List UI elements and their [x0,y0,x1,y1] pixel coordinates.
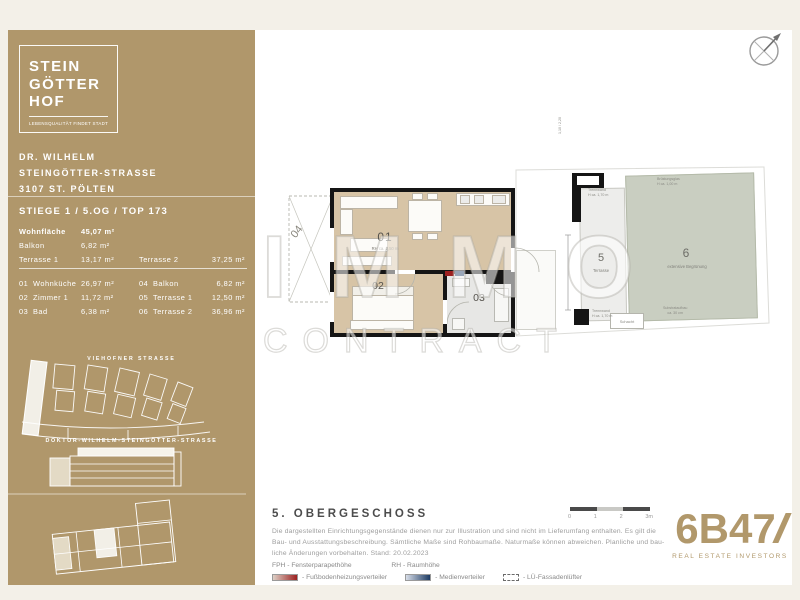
room-label: Balkon [153,279,179,288]
plan-room-01-sublabel: RH ca. 2,50 m [351,246,419,251]
annotation-bruestung: BrüstungsglasH ca. 1,00 m [657,177,680,188]
scale-tick: 1 [594,514,597,520]
plan-sheet: Schacht 01 RH ca. 2,50 m 02 03 04 5 Terr… [255,30,792,585]
brand-subtitle: REAL ESTATE INVESTORS [668,553,792,560]
abbreviations-row: FPH - Fensterparapethöhe RH - Raumhöhe [272,562,478,569]
summary-label: Balkon [19,241,81,250]
brand-6b47-logo: 6B47 REAL ESTATE INVESTORS [668,508,792,560]
wall-bottom [330,333,515,337]
summary-value: 37,25 m² [195,255,245,264]
annotation-trennwand-top: TrennwandH ca. 1,70 m [588,188,608,199]
door-opening [443,300,447,324]
room-label: Bad [33,307,48,316]
brochure-page: STEIN GÖTTER HOF LEBENSQUALITÄT FINDET S… [0,0,800,600]
address-line-1: DR. WILHELM [19,150,157,166]
plan-terrace-5-sublabel: Terrasse [581,268,621,273]
room-row: 03Bad 6,38 m² 06Terrasse 2 36,96 m² [19,304,247,318]
room-label: Terrasse 1 [153,293,193,302]
legend-row: - Fußbodenheizungsverteiler - Medienvert… [272,574,582,581]
room-area: 36,96 m² [195,307,245,316]
plan-room-03-label: 03 [464,292,494,304]
street-label-bottom: DOKTOR-WILHELM-STEINGÖTTER-STRASSE [8,438,255,444]
room-area: 11,72 m² [81,293,139,302]
address-line-3: 3107 ST. PÖLTEN [19,182,157,198]
room-list-table: 01Wohnküche 26,97 m² 04Balkon 6,82 m² 02… [19,276,247,318]
door-opening [395,270,415,274]
summary-value: 13,17 m² [81,255,139,264]
address-line-2: STEINGÖTTER-STRASSE [19,166,157,182]
disclaimer-line-2: Bau- und Ausstattungsbeschreibung. Sämtl… [272,539,665,546]
room-row: 01Wohnküche 26,97 m² 04Balkon 6,82 m² [19,276,247,290]
legend-red-label: - Fußbodenheizungsverteiler [302,574,387,581]
scale-tick: 2 [620,514,623,520]
sidebar-divider-thin [19,268,247,269]
room-label: Wohnküche [33,279,76,288]
project-address: DR. WILHELM STEINGÖTTER-STRASSE 3107 ST.… [19,150,157,197]
scale-tick-labels: 0 1 2 3m [568,514,653,520]
sidebar: STEIN GÖTTER HOF LEBENSQUALITÄT FINDET S… [8,30,255,585]
plan-terrace-5-label: 5 [591,252,611,264]
logo-line-3: HOF [29,93,108,111]
building-elevation [50,448,181,486]
room-number: 05 [139,293,153,302]
annotation-trennwand-bottom: TrennwandH ca. 1,70 m [592,309,612,320]
window-opening [330,228,334,262]
unit-title: STIEGE 1 / 5.OG / TOP 173 [19,206,168,217]
legend-blue-label: - Medienverteiler [435,574,485,581]
plan-room-01-label: 01 [361,230,409,244]
room-label: Terrasse 2 [153,307,193,316]
media-distributor-swatch [405,574,431,581]
terrace-wall-planter [577,176,599,185]
summary-value: 45,07 m² [81,227,139,236]
abbr-rh: RH - Raumhöhe [391,562,439,569]
annotation-substrat: Substrataufbauca. 30 cm [663,306,687,317]
room-number: 01 [19,279,33,288]
disclaimer-line-3: liche Änderungen vorbehalten. Stand: 20.… [272,550,429,557]
terrace-door-opening [511,248,515,272]
room-area: 12,50 m² [195,293,245,302]
shaft-box: Schacht [610,313,644,329]
summary-row: Balkon 6,82 m² [19,238,247,252]
area-summary-table: Wohnfläche 45,07 m² Balkon 6,82 m² Terra… [19,224,247,266]
summary-label: Terrasse 2 [139,255,195,264]
plan-greenroof-6-sublabel: extensive Begrünung [651,264,723,269]
room-area: 26,97 m² [81,279,139,288]
room-row: 02Zimmer 1 11,72 m² 05Terrasse 1 12,50 m… [19,290,247,304]
steingoetterhof-logo: STEIN GÖTTER HOF LEBENSQUALITÄT FINDET S… [19,45,118,133]
room-area: 6,82 m² [195,279,245,288]
sidebar-divider [8,196,255,197]
terrace-wall-stub [574,309,589,325]
wall-partition-horizontal [334,270,511,274]
scale-tick: 0 [568,514,571,520]
summary-row: Wohnfläche 45,07 m² [19,224,247,238]
summary-value: 6,82 m² [81,241,139,250]
logo-line-2: GÖTTER [29,76,108,94]
logo-tagline: LEBENSQUALITÄT FINDET STADT [29,116,108,126]
wall-top [330,188,515,192]
summary-row: Terrasse 1 13,17 m² Terrasse 2 37,25 m² [19,252,247,266]
facade-vent-swatch [503,574,519,581]
room-number: 03 [19,307,33,316]
media-distributor-marker [455,271,464,276]
neighbour-buildings [51,364,194,424]
floor-title: 5. OBERGESCHOSS [272,508,428,520]
scale-tick: 3m [645,514,653,520]
floor-heating-distributor-marker [445,271,454,276]
floor-key-plan [50,500,176,574]
summary-label: Terrasse 1 [19,255,81,264]
summary-label: Wohnfläche [19,227,81,236]
wall-shaft-mass [486,272,511,284]
disclaimer-line-1: Die dargestellten Einrichtungsgegenständ… [272,528,656,535]
brand-name: 6B47 [675,508,775,550]
room-label: Zimmer 1 [33,293,68,302]
floor-heating-distributor-swatch [272,574,298,581]
annotation-dimension: 1,10 / 2,20 [558,117,563,134]
logo-line-1: STEIN [29,58,108,76]
legend-dashed-label: - LÜ-Fassadenlüfter [523,574,582,581]
plan-room-02-label: 02 [363,280,393,292]
room-area: 6,38 m² [81,307,139,316]
plan-greenroof-6-label: 6 [676,246,696,260]
room-number: 04 [139,279,153,288]
compass-north-icon [741,30,789,76]
window-opening [330,292,334,322]
room-number: 02 [19,293,33,302]
street-label-top: VIEHOFNER STRASSE [8,356,255,362]
abbr-fph: FPH - Fensterparapethöhe [272,562,352,569]
site-plan-graphic [8,350,255,585]
scale-bar [570,507,650,511]
room-number: 06 [139,307,153,316]
